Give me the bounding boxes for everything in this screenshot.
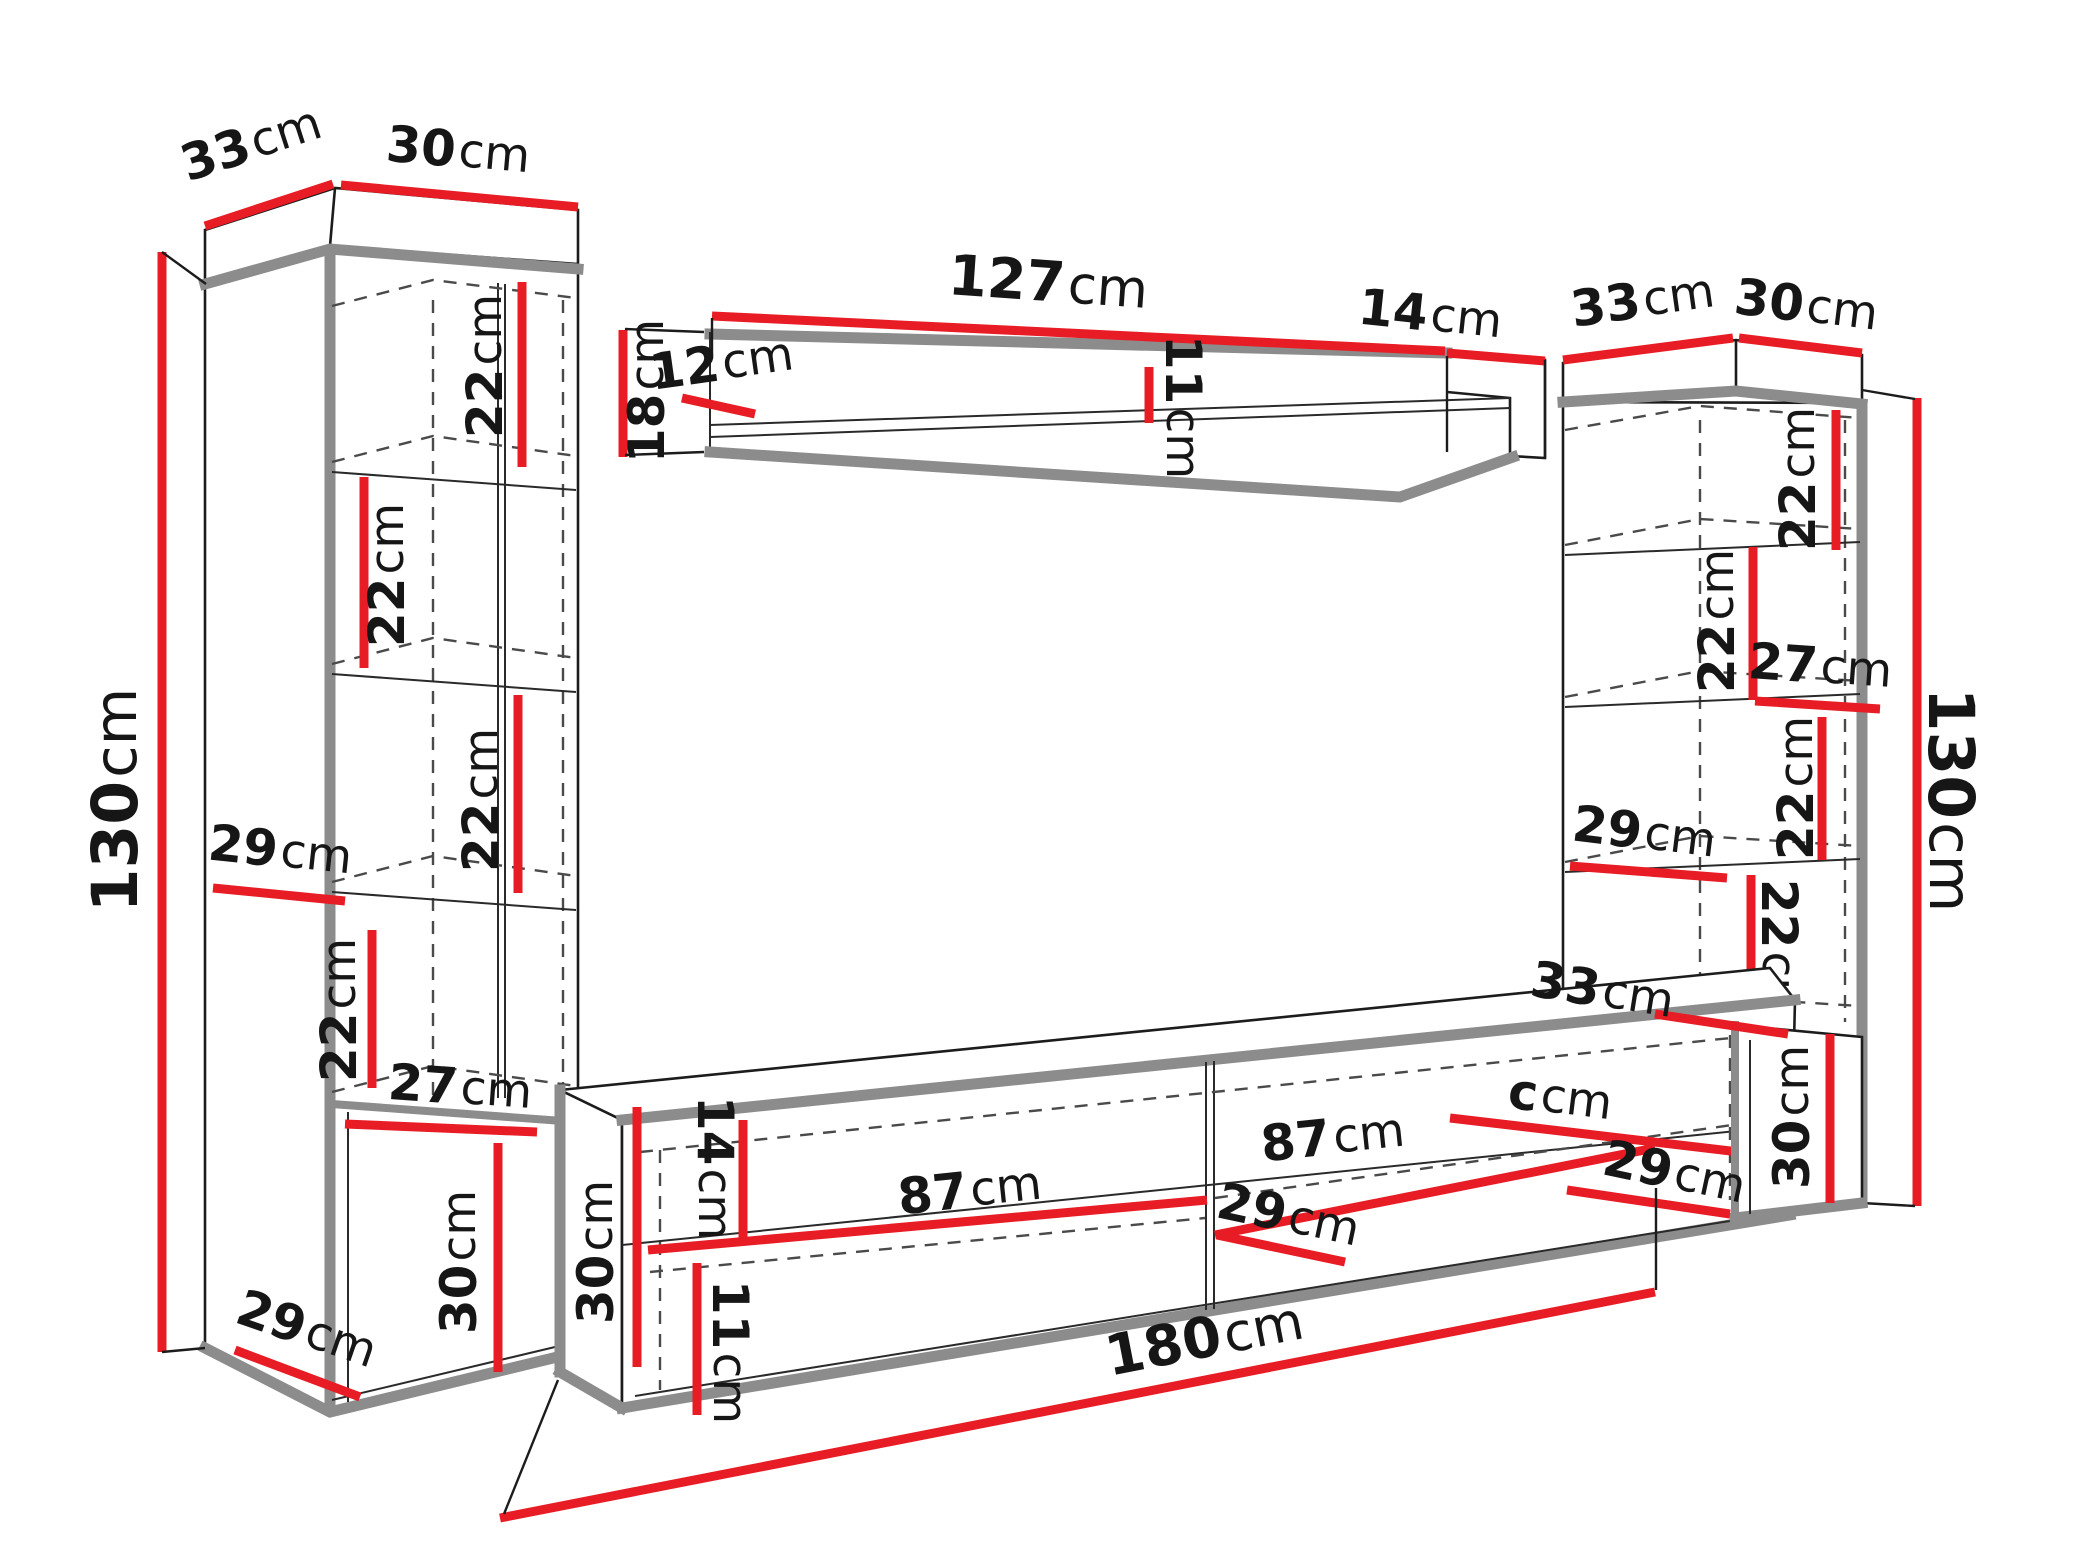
dim-label-rc-sec1: 22cm xyxy=(1769,407,1827,551)
dim-label-lc-sec3: 22cm xyxy=(452,728,510,872)
wall-shelf: 127cm 14cm 18cm 12cm 11cm xyxy=(618,243,1546,497)
dim-label-lc-top-depth: 33cm xyxy=(173,93,328,193)
dim-label-lc-height: 130cm xyxy=(79,688,152,913)
left-cabinet: 33cm 30cm 130cm 22cm 22cm 22cm 29cm 22cm… xyxy=(79,93,578,1412)
dim-label-ts-opening-height: 11cm xyxy=(702,1280,760,1424)
dim-label-ts-front-height: 14cm xyxy=(687,1096,745,1240)
dim-label-ts-height: 30cm xyxy=(567,1180,625,1324)
dim-label-rc-bottom-height: 30cm xyxy=(1763,1045,1821,1189)
dim-label-shelf-length: 127cm xyxy=(946,243,1150,322)
dim-label-shelf-inner-height: 11cm xyxy=(1155,335,1213,479)
dim-label-lc-bottom-height: 30cm xyxy=(430,1190,488,1334)
dim-tick-lc-height-top xyxy=(162,252,206,284)
dim-label-lc-sec1: 22cm xyxy=(456,294,514,438)
dim-tick-rc-height-top xyxy=(1862,390,1915,399)
dim-label-lc-sec4: 22cm xyxy=(310,938,368,1082)
furniture-dimension-diagram: 33cm 30cm 130cm 22cm 22cm 22cm 29cm 22cm… xyxy=(0,0,2087,1565)
dim-label-shelf-end-depth: 14cm xyxy=(1356,277,1505,350)
dim-label-rc-height: 130cm xyxy=(1914,688,1987,913)
dim-tick-ts-length-left xyxy=(504,1380,558,1514)
dim-tick-rc-height-bottom xyxy=(1862,1203,1915,1206)
dim-label-rc-sec2: 22cm xyxy=(1688,549,1746,693)
dim-label-rc-top-depth: 33cm xyxy=(1567,261,1718,339)
dim-label-rc-sec3: 22cm xyxy=(1767,716,1825,860)
diagram-canvas: 33cm 30cm 130cm 22cm 22cm 22cm 29cm 22cm… xyxy=(0,0,2087,1565)
dim-label-rc-top-width: 30cm xyxy=(1731,267,1881,342)
dim-label-lc-top-width: 30cm xyxy=(384,114,533,184)
dim-label-lc-sec2: 22cm xyxy=(358,503,416,647)
